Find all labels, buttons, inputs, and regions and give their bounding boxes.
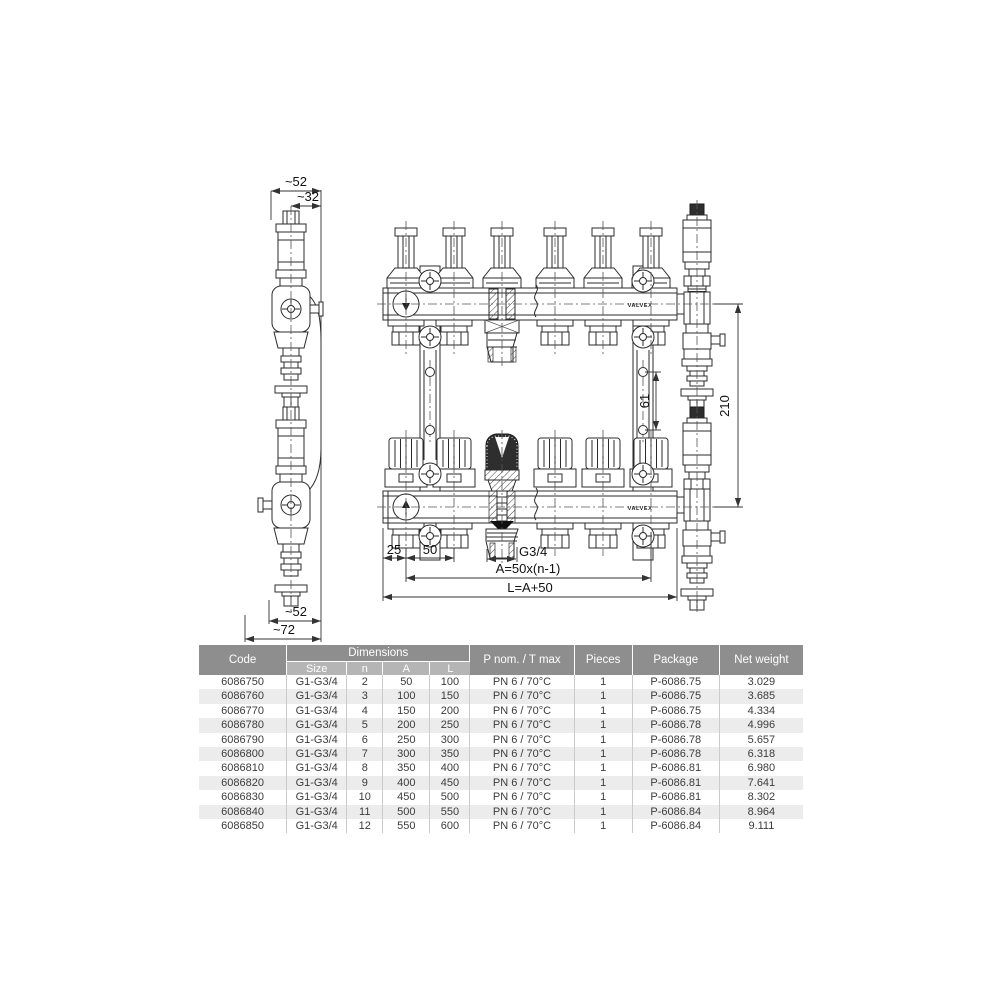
table-cell: G1-G3/4 — [287, 790, 347, 804]
front-view: VALVEX VALVEX — [377, 200, 743, 612]
table-cell: 7.641 — [720, 776, 803, 790]
table-cell: 6086790 — [199, 733, 287, 747]
table-row: 6086770G1-G3/44150200PN 6 / 70°C1P-6086.… — [199, 704, 803, 718]
table-cell: 150 — [430, 689, 470, 703]
table-cell: 150 — [383, 704, 430, 718]
table-row: 6086840G1-G3/411500550PN 6 / 70°C1P-6086… — [199, 805, 803, 819]
table-cell: G1-G3/4 — [287, 819, 347, 833]
table-cell: 1 — [575, 761, 633, 775]
table-cell: 3.685 — [720, 689, 803, 703]
col-header-dimensions: Dimensions — [287, 645, 470, 661]
table-cell: 6086750 — [199, 675, 287, 689]
table-cell: 8.302 — [720, 790, 803, 804]
table-row: 6086790G1-G3/46250300PN 6 / 70°C1P-6086.… — [199, 733, 803, 747]
table-cell: 600 — [430, 819, 470, 833]
table-cell: 6086830 — [199, 790, 287, 804]
side-view: ~52 ~32 ~52 ~72 — [245, 174, 323, 642]
table-cell: P-6086.75 — [633, 689, 720, 703]
table-row: 6086830G1-G3/410450500PN 6 / 70°C1P-6086… — [199, 790, 803, 804]
table-cell: PN 6 / 70°C — [470, 747, 574, 761]
table-cell: 3 — [347, 689, 383, 703]
table-cell: 4.334 — [720, 704, 803, 718]
table-cell: 12 — [347, 819, 383, 833]
table-cell: PN 6 / 70°C — [470, 689, 574, 703]
col-header-pieces: Pieces — [575, 645, 633, 675]
table-row: 6086780G1-G3/45200250PN 6 / 70°C1P-6086.… — [199, 718, 803, 732]
table-cell: 8 — [347, 761, 383, 775]
table-cell: 11 — [347, 805, 383, 819]
clamp-screw — [419, 463, 441, 485]
table-cell: P-6086.81 — [633, 776, 720, 790]
table-cell: G1-G3/4 — [287, 675, 347, 689]
table-cell: 6086820 — [199, 776, 287, 790]
col-header-size: Size — [287, 661, 347, 675]
table-cell: 1 — [575, 689, 633, 703]
table-cell: 6086770 — [199, 704, 287, 718]
table-cell: 350 — [383, 761, 430, 775]
dim-height: 210 — [717, 395, 732, 417]
table-cell: 250 — [383, 733, 430, 747]
table-cell: P-6086.78 — [633, 718, 720, 732]
table-cell: 6086760 — [199, 689, 287, 703]
table-cell: 450 — [383, 790, 430, 804]
dim-a-formula: A=50x(n-1) — [496, 561, 561, 576]
clamp-screw — [419, 270, 441, 292]
dim-bracket-holes: 61 — [637, 394, 652, 408]
table-cell: 6.980 — [720, 761, 803, 775]
table-cell: 400 — [430, 761, 470, 775]
table-cell: PN 6 / 70°C — [470, 675, 574, 689]
table-cell: PN 6 / 70°C — [470, 733, 574, 747]
table-cell: 500 — [430, 790, 470, 804]
table-cell: 5.657 — [720, 733, 803, 747]
air-vent-drain-bottom — [681, 407, 725, 610]
table-cell: 200 — [383, 718, 430, 732]
table-cell: 4 — [347, 704, 383, 718]
table-cell: 300 — [430, 733, 470, 747]
table-cell: 1 — [575, 776, 633, 790]
thermostatic-cap — [582, 438, 624, 487]
dim-spacing: 50 — [423, 542, 437, 557]
manifold-technical-drawing: ~52 ~32 ~52 ~72 — [0, 0, 1000, 1000]
table-cell: 500 — [383, 805, 430, 819]
table-cell: P-6086.81 — [633, 761, 720, 775]
table-cell: G1-G3/4 — [287, 689, 347, 703]
table-cell: 6086840 — [199, 805, 287, 819]
table-cell: 550 — [430, 805, 470, 819]
table-cell: 200 — [430, 704, 470, 718]
dim-side-bottom-width: ~52 — [285, 604, 307, 619]
col-header-l: L — [430, 661, 470, 675]
table-cell: G1-G3/4 — [287, 704, 347, 718]
table-cell: PN 6 / 70°C — [470, 805, 574, 819]
table-cell: 1 — [575, 704, 633, 718]
thermostatic-cap — [534, 438, 576, 487]
table-cell: 250 — [430, 718, 470, 732]
table-cell: P-6086.84 — [633, 805, 720, 819]
table-cell: 9.111 — [720, 819, 803, 833]
table-cell: P-6086.75 — [633, 675, 720, 689]
table-cell: P-6086.84 — [633, 819, 720, 833]
table-cell: 1 — [575, 790, 633, 804]
col-header-code: Code — [199, 645, 287, 675]
table-cell: PN 6 / 70°C — [470, 761, 574, 775]
table-cell: 550 — [383, 819, 430, 833]
table-cell: 100 — [430, 675, 470, 689]
table-cell: 6086800 — [199, 747, 287, 761]
table-cell: 9 — [347, 776, 383, 790]
dim-first-offset: 25 — [387, 542, 401, 557]
table-cell: P-6086.75 — [633, 704, 720, 718]
table-cell: PN 6 / 70°C — [470, 790, 574, 804]
table-cell: 4.996 — [720, 718, 803, 732]
table-cell: 6086780 — [199, 718, 287, 732]
air-vent-drain-top — [681, 204, 725, 410]
table-cell: 450 — [430, 776, 470, 790]
table-cell: P-6086.78 — [633, 747, 720, 761]
table-cell: G1-G3/4 — [287, 718, 347, 732]
table-row: 6086810G1-G3/48350400PN 6 / 70°C1P-6086.… — [199, 761, 803, 775]
bracket-hole — [426, 368, 435, 377]
dim-side-bottom-total: ~72 — [273, 622, 295, 637]
table-row: 6086750G1-G3/4250100PN 6 / 70°C1P-6086.7… — [199, 675, 803, 689]
col-header-pnom: P nom. / T max — [470, 645, 574, 675]
table-cell: G1-G3/4 — [287, 733, 347, 747]
table-cell: 6 — [347, 733, 383, 747]
table-cell: P-6086.81 — [633, 790, 720, 804]
table-cell: 6.318 — [720, 747, 803, 761]
table-cell: PN 6 / 70°C — [470, 776, 574, 790]
datasheet-page: ~52 ~32 ~52 ~72 — [0, 0, 1000, 1000]
table-cell: 1 — [575, 718, 633, 732]
table-cell: 2 — [347, 675, 383, 689]
table-cell: PN 6 / 70°C — [470, 718, 574, 732]
table-cell: G1-G3/4 — [287, 747, 347, 761]
table-cell: PN 6 / 70°C — [470, 704, 574, 718]
dim-side-top-width: ~52 — [285, 174, 307, 189]
table-cell: PN 6 / 70°C — [470, 819, 574, 833]
table-row: 6086820G1-G3/49400450PN 6 / 70°C1P-6086.… — [199, 776, 803, 790]
table-cell: 7 — [347, 747, 383, 761]
table-cell: 1 — [575, 675, 633, 689]
col-header-net-weight: Net weight — [720, 645, 803, 675]
table-cell: 1 — [575, 733, 633, 747]
table-cell: 1 — [575, 805, 633, 819]
table-cell: G1-G3/4 — [287, 761, 347, 775]
col-header-n: n — [347, 661, 383, 675]
table-cell: 5 — [347, 718, 383, 732]
dim-side-top-offset: ~32 — [297, 189, 319, 204]
col-header-package: Package — [633, 645, 720, 675]
dim-l-formula: L=A+50 — [507, 580, 553, 595]
table-cell: P-6086.78 — [633, 733, 720, 747]
table-cell: 3.029 — [720, 675, 803, 689]
table-cell: 300 — [383, 747, 430, 761]
table-row: 6086760G1-G3/43100150PN 6 / 70°C1P-6086.… — [199, 689, 803, 703]
table-cell: 100 — [383, 689, 430, 703]
clamp-screw — [419, 326, 441, 348]
col-header-a: A — [383, 661, 430, 675]
table-row: 6086850G1-G3/412550600PN 6 / 70°C1P-6086… — [199, 819, 803, 833]
dim-outlet-thread: G3/4 — [519, 544, 547, 559]
table-cell: G1-G3/4 — [287, 776, 347, 790]
table-cell: 1 — [575, 819, 633, 833]
table-cell: G1-G3/4 — [287, 805, 347, 819]
table-cell: 6086810 — [199, 761, 287, 775]
table-cell: 8.964 — [720, 805, 803, 819]
bracket-hole — [426, 426, 435, 435]
table-cell: 1 — [575, 747, 633, 761]
spec-table-body: 6086750G1-G3/4250100PN 6 / 70°C1P-6086.7… — [199, 675, 803, 833]
table-cell: 400 — [383, 776, 430, 790]
table-row: 6086800G1-G3/47300350PN 6 / 70°C1P-6086.… — [199, 747, 803, 761]
table-cell: 10 — [347, 790, 383, 804]
table-cell: 6086850 — [199, 819, 287, 833]
spec-table: Code Dimensions P nom. / T max Pieces Pa… — [199, 645, 803, 833]
table-cell: 50 — [383, 675, 430, 689]
table-cell: 350 — [430, 747, 470, 761]
